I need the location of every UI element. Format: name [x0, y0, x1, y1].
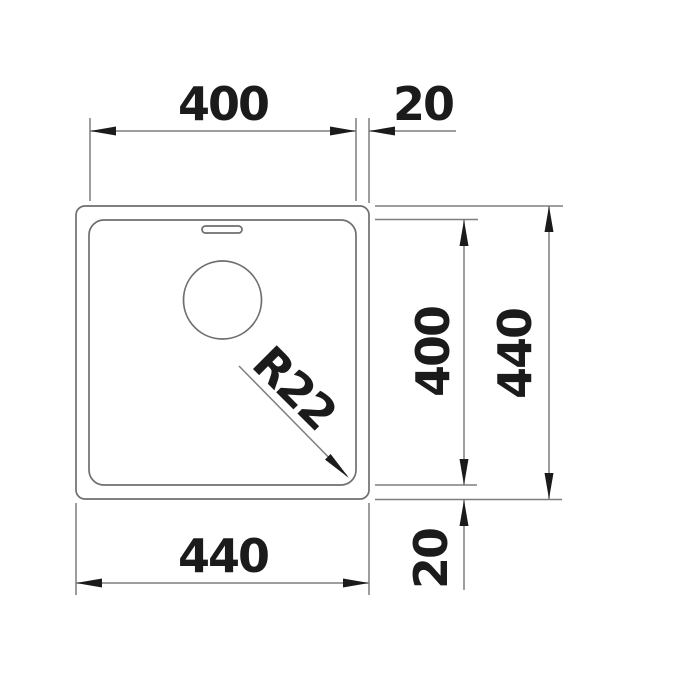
radius-arrowhead-icon [325, 454, 349, 478]
arrowhead-left-icon [369, 127, 395, 136]
outer-height-label: 440 [488, 309, 542, 399]
arrowhead-down-icon [460, 459, 469, 485]
right-dimension-group: 400 440 20 [375, 206, 563, 590]
arrowhead-right-icon [343, 579, 369, 588]
inner-width-label: 400 [178, 77, 268, 131]
drawing-canvas: R22 400 20 400 [0, 0, 700, 700]
arrowhead-up-icon [460, 220, 469, 246]
sink-outline-group [76, 206, 369, 499]
corner-radius-label: R22 [242, 336, 346, 440]
inner-height-label: 400 [406, 307, 460, 397]
arrowhead-up-icon [545, 206, 554, 232]
arrowhead-right-icon [330, 127, 356, 136]
overflow-slot [202, 226, 242, 233]
drain-hole [184, 261, 262, 339]
rim-offset-bottom-label: 20 [404, 529, 458, 589]
arrowhead-up-icon [460, 500, 469, 526]
rim-offset-top-label: 20 [393, 77, 453, 131]
radius-leader-group: R22 [239, 336, 349, 478]
arrowhead-down-icon [545, 473, 554, 499]
arrowhead-left-icon [90, 127, 116, 136]
sink-outer-edge [76, 206, 369, 499]
sink-dimension-drawing: R22 400 20 400 [0, 0, 700, 700]
arrowhead-left-icon [76, 579, 102, 588]
bottom-dimension-group: 440 [76, 503, 369, 595]
outer-width-label: 440 [178, 529, 268, 583]
top-dimension-group: 400 20 [90, 77, 456, 203]
